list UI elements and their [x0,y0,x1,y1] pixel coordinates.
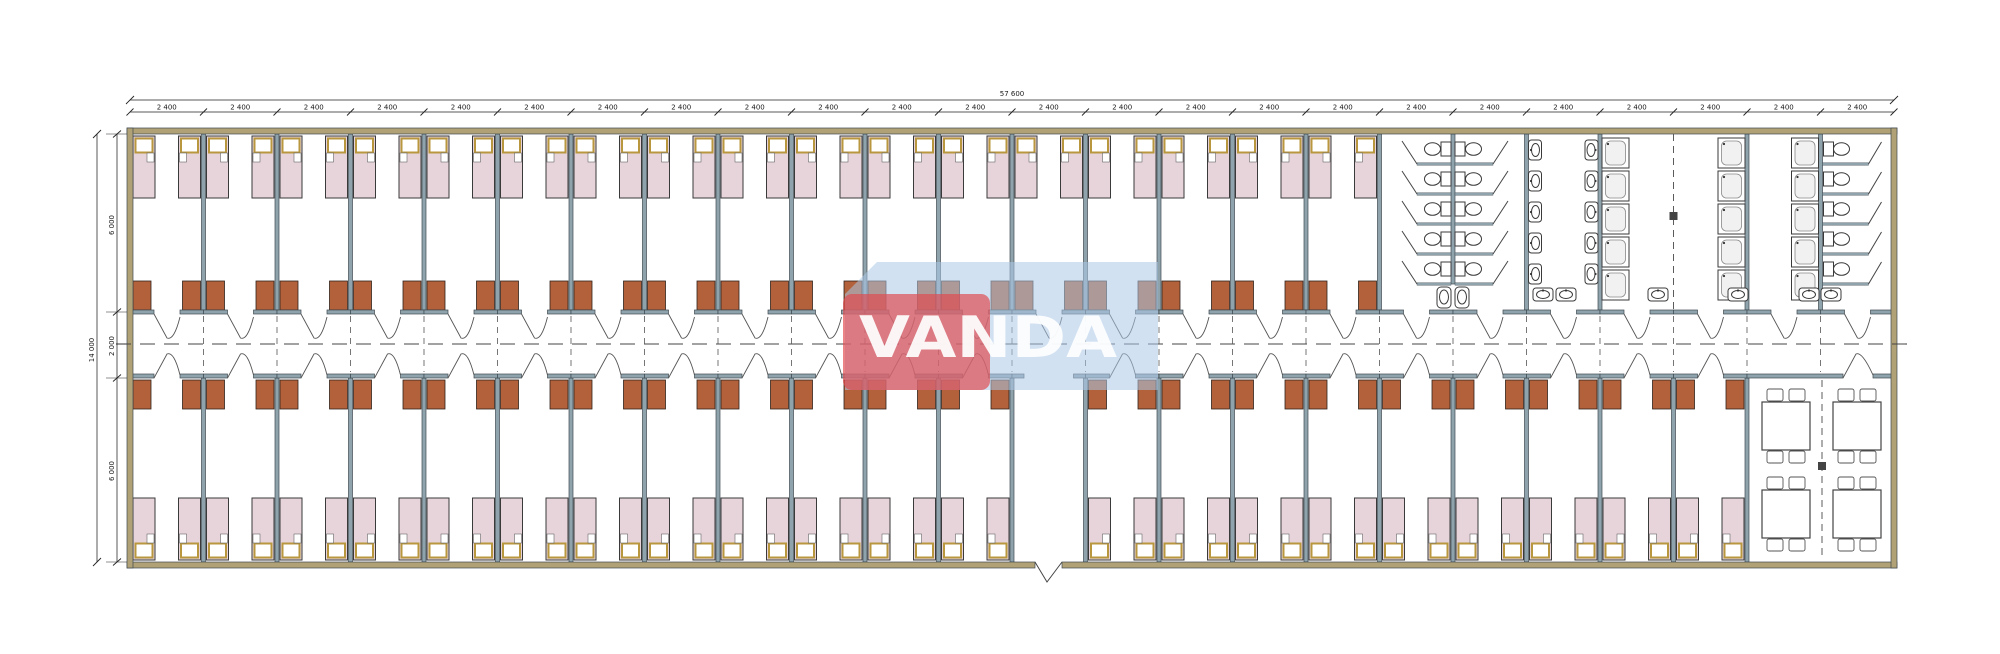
wardrobe [427,281,445,310]
corridor-wall [1674,374,1698,378]
shower-drain [1607,209,1609,211]
wall-room-divider [1231,378,1235,562]
shower-drain [1796,143,1798,145]
blanket-fold [694,153,701,162]
corridor-wall [1283,310,1307,314]
blanket-fold [400,534,407,543]
dim-height-segment-corridor-label: 2 000 [108,336,116,356]
stall-door [1869,202,1882,224]
pillow [1504,544,1521,558]
chair [1838,389,1854,401]
sink-basin [1532,268,1540,281]
chair [1767,477,1783,489]
dining-table [1833,490,1881,538]
wardrobe [574,380,592,409]
door-swing [1843,354,1873,378]
corridor-wall [401,310,425,314]
stall-door [1402,171,1417,194]
toilet-tank [1824,232,1834,246]
wall-room-divider [496,134,500,310]
dim-module-label: 2 400 [1700,104,1720,112]
dim-module-label: 2 400 [745,104,765,112]
door-swing [1330,314,1356,338]
sink-faucet [1808,289,1810,291]
stall-partition [1455,163,1493,165]
dim-module-label: 2 400 [1039,104,1059,112]
pillow [1532,544,1549,558]
pillow [1238,544,1255,558]
wall-room-divider [1304,378,1308,562]
chair [1789,539,1805,551]
pillow [430,544,447,558]
door-swing [816,354,842,378]
corridor-wall [1306,310,1330,314]
sink-faucet [1530,180,1532,182]
toilet-bowl [1425,173,1441,186]
wardrobe [280,380,298,409]
sink-faucet [1594,149,1596,151]
dim-module-label: 2 400 [671,104,691,112]
blanket-fold [1356,534,1363,543]
wardrobe [1726,380,1744,409]
wall-room-divider [569,378,573,562]
door-swing [448,354,474,378]
stall-partition [1823,253,1869,255]
blanket-fold [956,534,963,543]
door-swing [1257,354,1283,378]
wardrobe [1212,380,1230,409]
blanket-fold [662,534,669,543]
exterior-wall-bottom [127,562,1035,568]
corridor-wall [498,374,522,378]
stall-door [1869,172,1882,194]
dining-table [1762,402,1810,450]
pillow [1606,544,1623,558]
stall-partition [1417,253,1451,255]
wall-room-divider [1598,378,1602,562]
corridor-wall [1356,374,1380,378]
shower-drain [1723,209,1725,211]
stall-door [1402,141,1417,164]
partition-marker [1818,462,1826,470]
stall-partition [1417,283,1451,285]
blanket-fold [221,534,228,543]
wardrobe [1162,380,1180,409]
pillow [1091,139,1108,153]
chair [1860,451,1876,463]
partition-marker [1670,212,1678,220]
wardrobe [477,281,495,310]
corridor-wall [1503,310,1527,314]
blanket-fold [988,534,995,543]
dim-module-label: 2 400 [1112,104,1132,112]
toilet-tank [1441,262,1451,276]
corridor-wall [1233,374,1257,378]
wardrobe [1285,281,1303,310]
pillow [356,544,373,558]
wardrobe [256,380,274,409]
dim-module-label: 2 400 [377,104,397,112]
blanket-fold [515,153,522,162]
door-swing [301,314,327,338]
blanket-fold [841,534,848,543]
door-swing [1257,314,1283,338]
chair [1767,539,1783,551]
blanket-fold [1135,153,1142,162]
door-swing [1771,314,1797,338]
door-swing [595,354,621,378]
wardrobe [648,380,666,409]
shower-drain [1723,143,1725,145]
door-swing [1624,354,1650,378]
wardrobe [574,281,592,310]
stall-partition [1823,193,1869,195]
pillow [255,139,272,153]
blanket-fold [253,153,260,162]
corridor-wall [1306,374,1330,378]
blanket-fold [1576,534,1583,543]
wardrobe [183,380,201,409]
stall-partition [1417,163,1451,165]
pillow [577,544,594,558]
pillow [871,139,888,153]
chair [1767,451,1783,463]
wall-room-divider [1451,378,1455,562]
wc-back-wall [1451,134,1455,284]
wardrobe [1309,281,1327,310]
blanket-fold [809,534,816,543]
shower-drain [1607,275,1609,277]
blanket-fold [327,153,334,162]
blanket-fold [1723,534,1730,543]
wardrobe [721,380,739,409]
shower-drain [1607,242,1609,244]
dim-module-label: 2 400 [892,104,912,112]
toilet-bowl [1466,263,1482,276]
pillow [1357,544,1374,558]
stall-door [1493,261,1508,284]
blanket-fold [768,534,775,543]
pillow [871,544,888,558]
drawing-sheet: 2 4002 4002 4002 4002 4002 4002 4002 400… [0,0,2000,654]
corridor-wall [327,310,351,314]
dim-module-label: 2 400 [1186,104,1206,112]
wardrobe [1432,380,1450,409]
wall-room-divider [422,378,426,562]
dim-module-label: 2 400 [1774,104,1794,112]
corridor-wall [1600,310,1624,314]
pillow [1137,139,1154,153]
pillow [1725,544,1742,558]
dim-module-label: 2 400 [818,104,838,112]
wall-room-divider [716,134,720,310]
pillow [1284,544,1301,558]
corridor-wall [548,374,572,378]
toilet-bowl [1466,233,1482,246]
blanket-fold [327,534,334,543]
blanket-fold [400,153,407,162]
dim-module-label: 2 400 [1259,104,1279,112]
pillow [1165,544,1182,558]
corridor-wall [130,310,154,314]
entrance-door-swing [1035,562,1062,582]
door-swing [301,354,327,378]
pillow [181,139,198,153]
wardrobe [1285,380,1303,409]
wall-room-divider [790,134,794,310]
pillow [503,139,520,153]
corridor-wall [1233,310,1257,314]
sink-faucet [1830,289,1832,291]
sink-faucet [1594,273,1596,275]
wardrobe [1603,380,1621,409]
dim-height-total-label: 14 000 [88,338,96,363]
dim-module-label: 2 400 [1480,104,1500,112]
wardrobe [697,281,715,310]
door-swing [1477,314,1503,338]
blanket-fold [441,534,448,543]
blanket-fold [1617,534,1624,543]
pillow [402,544,419,558]
pillow [136,139,153,153]
pillow [209,139,226,153]
pillow [990,139,1007,153]
door-swing [1698,354,1724,378]
door-swing [1404,354,1430,378]
blanket-fold [547,534,554,543]
toilet-bowl [1834,263,1850,276]
wardrobe [477,380,495,409]
pillow [944,544,961,558]
corridor-wall [571,374,595,378]
toilet-tank [1441,172,1451,186]
wall-room-divider [1231,134,1235,310]
door-swing [154,354,180,378]
pillow [181,544,198,558]
wardrobe [1530,380,1548,409]
toilet-tank [1824,262,1834,276]
wardrobe [1383,380,1401,409]
stall-door [1869,232,1882,254]
dim-module-label: 2 400 [451,104,471,112]
blanket-fold [915,534,922,543]
blanket-fold [882,153,889,162]
chair [1860,477,1876,489]
blanket-fold [1062,153,1069,162]
toilet-bowl [1834,173,1850,186]
pillow [696,139,713,153]
dim-module-label: 2 400 [524,104,544,112]
dim-height-segment-top-label: 6 000 [108,215,116,235]
blanket-fold [841,153,848,162]
blanket-fold [1429,534,1436,543]
corridor-wall [351,310,375,314]
pillow [1651,544,1668,558]
stall-partition [1823,283,1869,285]
dining-table [1762,490,1810,538]
pillow [1357,139,1374,153]
exterior-wall-left [127,128,133,568]
wall-room-divider [422,134,426,310]
pillow [724,139,741,153]
sink-basin [1825,291,1838,299]
stall-partition [1823,163,1869,165]
toilet-bowl [1466,143,1482,156]
stall-door [1402,201,1417,224]
pillow [328,544,345,558]
pillow [430,139,447,153]
wall-room-divider [1378,134,1382,310]
stall-partition [1455,253,1493,255]
corridor-wall [645,374,669,378]
pillow [1459,544,1476,558]
wardrobe [280,281,298,310]
corridor-wall [401,374,425,378]
wardrobe [697,380,715,409]
pillow [209,544,226,558]
toilet-tank [1824,202,1834,216]
wardrobe [1579,380,1597,409]
chair [1789,389,1805,401]
pillow [1284,139,1301,153]
shower-drain [1796,176,1798,178]
sink-basin [1587,175,1595,188]
wardrobe [256,281,274,310]
blanket-fold [1250,153,1257,162]
wall-room-divider [1819,134,1823,310]
stall-door [1869,262,1882,284]
corridor-wall [792,374,816,378]
blanket-fold [1650,534,1657,543]
blanket-fold [1397,534,1404,543]
wardrobe [183,281,201,310]
wardrobe [427,380,445,409]
corridor-wall [1430,310,1454,314]
wall-room-divider [1672,378,1676,562]
wardrobe [795,380,813,409]
pillow [797,544,814,558]
toilet-bowl [1834,143,1850,156]
sink-basin [1560,291,1573,299]
pillow [1137,544,1154,558]
pillow [1312,544,1329,558]
wall-room-divider [349,134,353,310]
pillow [1385,544,1402,558]
chair [1789,477,1805,489]
sink-basin [1532,144,1540,157]
corridor-wall [621,374,645,378]
blanket-fold [621,534,628,543]
chair [1838,477,1854,489]
stall-door [1869,142,1882,164]
toilet-bowl [1425,263,1441,276]
corridor-wall [277,310,301,314]
wall-room-divider [275,134,279,310]
toilet-bowl [1466,173,1482,186]
corridor-wall [204,310,228,314]
wardrobe [330,281,348,310]
corridor-wall [1650,310,1674,314]
pillow [1091,544,1108,558]
wardrobe [133,281,151,310]
pillow [283,544,300,558]
shower-drain [1723,242,1725,244]
corridor-wall [1724,310,1748,314]
wall-room-divider [1157,378,1161,562]
corridor-wall [1527,374,1551,378]
blanket-fold [515,534,522,543]
toilet-bowl [1466,203,1482,216]
wardrobe [354,281,372,310]
wardrobe [207,380,225,409]
door-swing [742,354,768,378]
stall-partition [1455,223,1493,225]
blanket-fold [1209,153,1216,162]
pillow [1431,544,1448,558]
wall-room-divider [1525,378,1529,562]
dim-module-label: 2 400 [598,104,618,112]
door-swing [1551,354,1577,378]
dim-total-width-label: 57 600 [1000,90,1025,98]
wardrobe [721,281,739,310]
blanket-fold [180,534,187,543]
door-swing [522,314,548,338]
dim-module-label: 2 400 [965,104,985,112]
stall-door [1402,231,1417,254]
stall-door [1402,261,1417,284]
sink-basin [1532,175,1540,188]
blanket-fold [1691,534,1698,543]
wardrobe [1309,380,1327,409]
wardrobe [501,380,519,409]
corridor-wall [254,310,278,314]
sink-basin [1532,206,1540,219]
stall-door [1493,171,1508,194]
door-swing [1845,314,1871,338]
pillow [549,139,566,153]
sink-faucet [1542,289,1544,291]
blanket-fold [474,534,481,543]
toilet-tank [1441,142,1451,156]
exterior-wall-bottom [1062,562,1897,568]
door-swing [1551,314,1577,338]
corridor-wall [1674,310,1698,314]
wardrobe [403,281,421,310]
door-swing [1183,314,1209,338]
toilet-tank [1441,202,1451,216]
blanket-fold [956,153,963,162]
corridor-wall [1747,310,1771,314]
corridor-wall [718,374,742,378]
sink-faucet [1594,211,1596,213]
corridor-wall [1159,374,1183,378]
door-swing [1330,354,1356,378]
toilet-bowl [1425,143,1441,156]
sink-basin [1532,237,1540,250]
pillow [650,544,667,558]
door-swing [375,314,401,338]
corridor-wall [1209,310,1233,314]
pillow [356,139,373,153]
wall-room-divider [1745,134,1749,310]
corridor-wall [1430,374,1454,378]
pillow [622,139,639,153]
stall-partition [1455,193,1493,195]
corridor-wall [1724,374,1748,378]
corridor-wall [1821,310,1845,314]
corridor-wall [1577,374,1601,378]
dim-module-label: 2 400 [230,104,250,112]
